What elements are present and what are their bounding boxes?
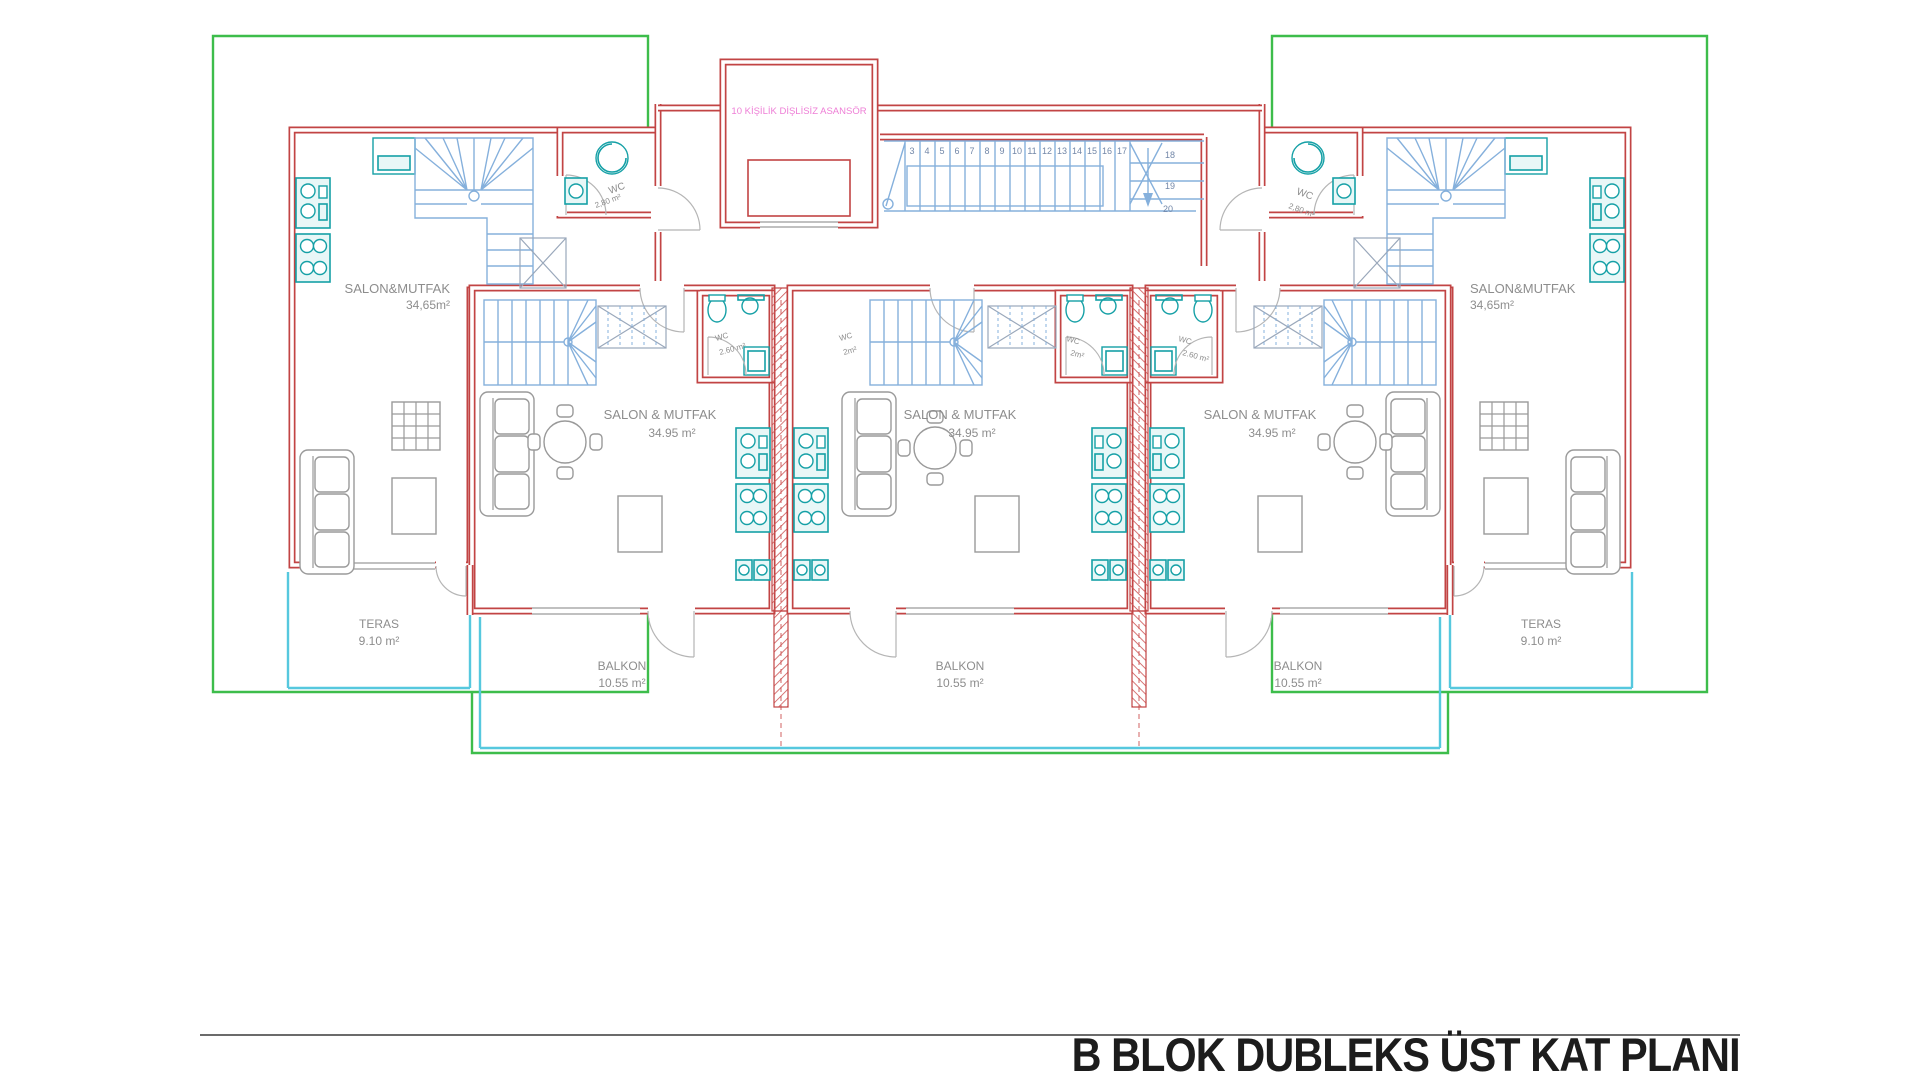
svg-text:10.55 m²: 10.55 m² (598, 676, 645, 690)
central-stair (880, 137, 1204, 266)
svg-text:8: 8 (984, 146, 989, 156)
sofa-inner-left (480, 392, 534, 516)
plan-title: B BLOK DUBLEKS ÜST KAT PLANI (1072, 1030, 1740, 1080)
svg-text:13: 13 (1057, 146, 1067, 156)
svg-text:34.95 m²: 34.95 m² (948, 426, 995, 440)
coffee-table-outer-left (392, 478, 436, 534)
svg-text:SALON&MUTFAK: SALON&MUTFAK (1470, 281, 1576, 296)
label-teras-right: TERAS 9.10 m² (1521, 617, 1562, 648)
svg-text:19: 19 (1165, 181, 1175, 191)
door-inner-left-balcony (648, 604, 695, 657)
svg-text:9.10 m²: 9.10 m² (1521, 634, 1562, 648)
svg-text:TERAS: TERAS (359, 617, 399, 631)
svg-text:BALKON: BALKON (936, 659, 985, 673)
door-corridor-outer-left (651, 186, 700, 232)
window-inner-left-south (532, 604, 640, 618)
label-balkon-3: BALKON 10.55 m² (1274, 659, 1323, 690)
elevator-label: 10 KİŞİLİK DİŞLİSİZ ASANSÖR (731, 106, 866, 117)
floor-plan-page: 10 KİŞİLİK DİŞLİSİZ ASANSÖR SALON&MUTFAK… (0, 0, 1920, 1080)
svg-text:3: 3 (909, 146, 914, 156)
svg-text:9: 9 (999, 146, 1004, 156)
svg-text:BALKON: BALKON (598, 659, 647, 673)
svg-text:11: 11 (1027, 146, 1036, 156)
svg-text:6: 6 (954, 146, 959, 156)
elevator-shaft (723, 62, 875, 232)
balcony-divider-hatch (774, 611, 788, 707)
svg-text:15: 15 (1087, 146, 1097, 156)
plan-right-half (790, 36, 1707, 753)
side-table-inner-left (618, 496, 662, 552)
svg-text:5: 5 (939, 146, 944, 156)
svg-text:20: 20 (1163, 204, 1173, 214)
svg-text:4: 4 (924, 146, 929, 156)
svg-text:SALON & MUTFAK: SALON & MUTFAK (904, 407, 1017, 422)
svg-text:14: 14 (1072, 146, 1082, 156)
sofa-outer-left (300, 450, 354, 574)
svg-text:9.10 m²: 9.10 m² (359, 634, 400, 648)
svg-text:10.55 m²: 10.55 m² (936, 676, 983, 690)
svg-text:SALON & MUTFAK: SALON & MUTFAK (1204, 407, 1317, 422)
square-table-outer-left (392, 402, 440, 450)
svg-text:TERAS: TERAS (1521, 617, 1561, 631)
svg-text:10: 10 (1012, 146, 1022, 156)
label-balkon-2: BALKON 10.55 m² (936, 659, 985, 690)
svg-text:16: 16 (1102, 146, 1112, 156)
svg-text:18: 18 (1165, 150, 1175, 160)
svg-text:10.55 m²: 10.55 m² (1274, 676, 1321, 690)
svg-text:SALON&MUTFAK: SALON&MUTFAK (345, 281, 451, 296)
svg-text:34,65m²: 34,65m² (406, 298, 450, 312)
svg-text:17: 17 (1117, 146, 1127, 156)
svg-text:BALKON: BALKON (1274, 659, 1323, 673)
svg-text:SALON & MUTFAK: SALON & MUTFAK (604, 407, 717, 422)
label-balkon-1: BALKON 10.55 m² (598, 659, 647, 690)
label-teras-left: TERAS 9.10 m² (359, 617, 400, 648)
svg-text:12: 12 (1042, 146, 1052, 156)
stair-arrow (1143, 193, 1153, 207)
svg-text:7: 7 (969, 146, 974, 156)
floor-plan-canvas: 10 KİŞİLİK DİŞLİSİZ ASANSÖR SALON&MUTFAK… (0, 0, 1920, 1080)
svg-text:34.95 m²: 34.95 m² (648, 426, 695, 440)
svg-text:34.95 m²: 34.95 m² (1248, 426, 1295, 440)
svg-text:34,65m²: 34,65m² (1470, 298, 1514, 312)
door-teras (436, 559, 466, 596)
